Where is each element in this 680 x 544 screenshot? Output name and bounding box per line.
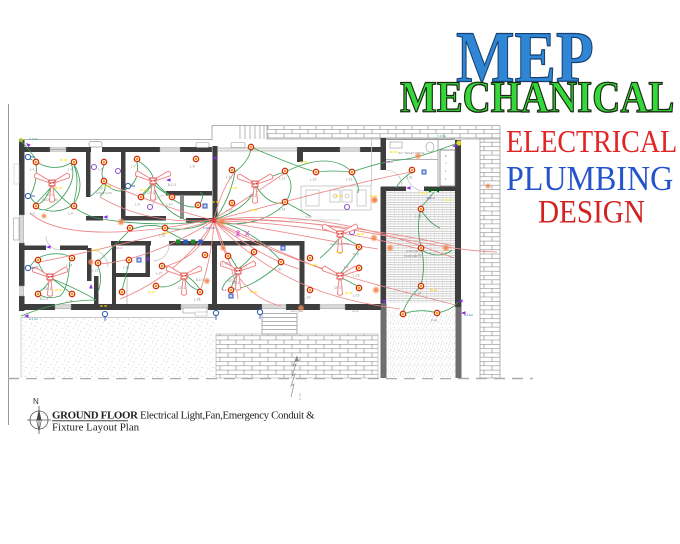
- svg-text:GAR*GE: GAR*GE: [406, 249, 418, 253]
- svg-text:L-7: L-7: [131, 165, 136, 169]
- svg-text:L-4: L-4: [68, 212, 73, 216]
- svg-text:L-24: L-24: [66, 264, 73, 268]
- svg-text:L-31: L-31: [406, 176, 413, 180]
- svg-text:L-26: L-26: [123, 266, 130, 270]
- svg-text:L-2: L-2: [68, 168, 73, 172]
- svg-text:B-D 2: B-D 2: [168, 183, 176, 187]
- svg-text:1-W1 2N: 1-W1 2N: [203, 226, 215, 230]
- svg-text:L-29: L-29: [222, 262, 229, 266]
- svg-text:CF-1: CF-1: [178, 286, 186, 290]
- svg-text:COND*1+50: COND*1+50: [96, 191, 112, 195]
- svg-text:L-8: L-8: [190, 165, 195, 169]
- svg-text:B-D 4: B-D 4: [196, 278, 204, 282]
- svg-text:L-33: L-33: [415, 254, 422, 258]
- svg-text:L-9: L-9: [135, 203, 140, 207]
- svg-text:14-2: 14-2: [116, 246, 122, 250]
- svg-text:2-4 No: 2-4 No: [29, 137, 38, 141]
- svg-text:L-34: L-34: [415, 292, 422, 296]
- svg-text:DESIGN: DESIGN: [538, 193, 645, 230]
- svg-text:CF-1: CF-1: [232, 281, 240, 285]
- svg-text:L-27: L-27: [156, 272, 163, 276]
- svg-text:Exp-2: Exp-2: [385, 160, 393, 164]
- svg-text:2-4 No: 2-4 No: [29, 317, 38, 321]
- svg-text:CF-1: CF-1: [46, 193, 54, 197]
- svg-text:CF-2: CF-2: [249, 194, 257, 198]
- svg-text:P: P: [445, 154, 447, 158]
- svg-text:porch: porch: [352, 309, 359, 313]
- svg-text:L-32: L-32: [415, 215, 422, 219]
- svg-text:L-25: L-25: [66, 300, 73, 304]
- svg-text:ELECTRICAL: ELECTRICAL: [506, 125, 677, 160]
- svg-text:L-21: L-21: [92, 269, 99, 273]
- svg-text:L-14: L-14: [279, 208, 286, 212]
- svg-text:P+8: P+8: [431, 319, 437, 323]
- svg-text:L-13: L-13: [226, 209, 233, 213]
- svg-text:CF-1: CF-1: [44, 287, 52, 291]
- svg-text:1-2: 1-2: [344, 265, 349, 269]
- svg-text:L-30: L-30: [275, 268, 282, 272]
- svg-text:L-16: L-16: [346, 178, 353, 182]
- svg-text:L-3: L-3: [30, 212, 35, 216]
- svg-text:L-10: L-10: [166, 203, 173, 207]
- svg-text:L-23: L-23: [32, 266, 39, 270]
- svg-text:4.0m: 4.0m: [305, 215, 312, 219]
- svg-text:B-D 3: B-D 3: [40, 297, 48, 301]
- svg-text:L-1: L-1: [30, 168, 35, 172]
- svg-text:A+MODERATE: A+MODERATE: [330, 242, 349, 246]
- svg-text:3-2: 3-2: [222, 288, 227, 292]
- svg-text:L-15: L-15: [310, 178, 317, 182]
- svg-text:N: N: [33, 397, 39, 406]
- svg-text:CF-1: CF-1: [147, 191, 155, 195]
- svg-text:1: 1: [299, 397, 301, 401]
- svg-text:L-19: L-19: [353, 294, 360, 298]
- svg-text:L-6: L-6: [98, 187, 103, 191]
- svg-text:CF 2: CF 2: [334, 286, 341, 290]
- svg-text:L-22: L-22: [159, 234, 166, 238]
- svg-text:main gate: main gate: [290, 309, 304, 313]
- svg-text:7-4 No: 7-4 No: [437, 134, 446, 138]
- svg-text:L-5: L-5: [98, 168, 103, 172]
- svg-text:Fixture Layout Plan: Fixture Layout Plan: [52, 422, 140, 434]
- svg-text:MECHANICAL: MECHANICAL: [400, 72, 674, 121]
- svg-text:L-20: L-20: [304, 296, 311, 300]
- svg-text:L-18: L-18: [353, 274, 360, 278]
- svg-text:L-11: L-11: [226, 176, 232, 180]
- svg-text:GROUND FLOOR Electrical Light,: GROUND FLOOR Electrical Light,Fan,Emerge…: [52, 410, 315, 422]
- svg-text:L-12: L-12: [279, 177, 286, 181]
- svg-text:L-28: L-28: [194, 298, 201, 302]
- svg-text:P+4: P+4: [353, 253, 359, 257]
